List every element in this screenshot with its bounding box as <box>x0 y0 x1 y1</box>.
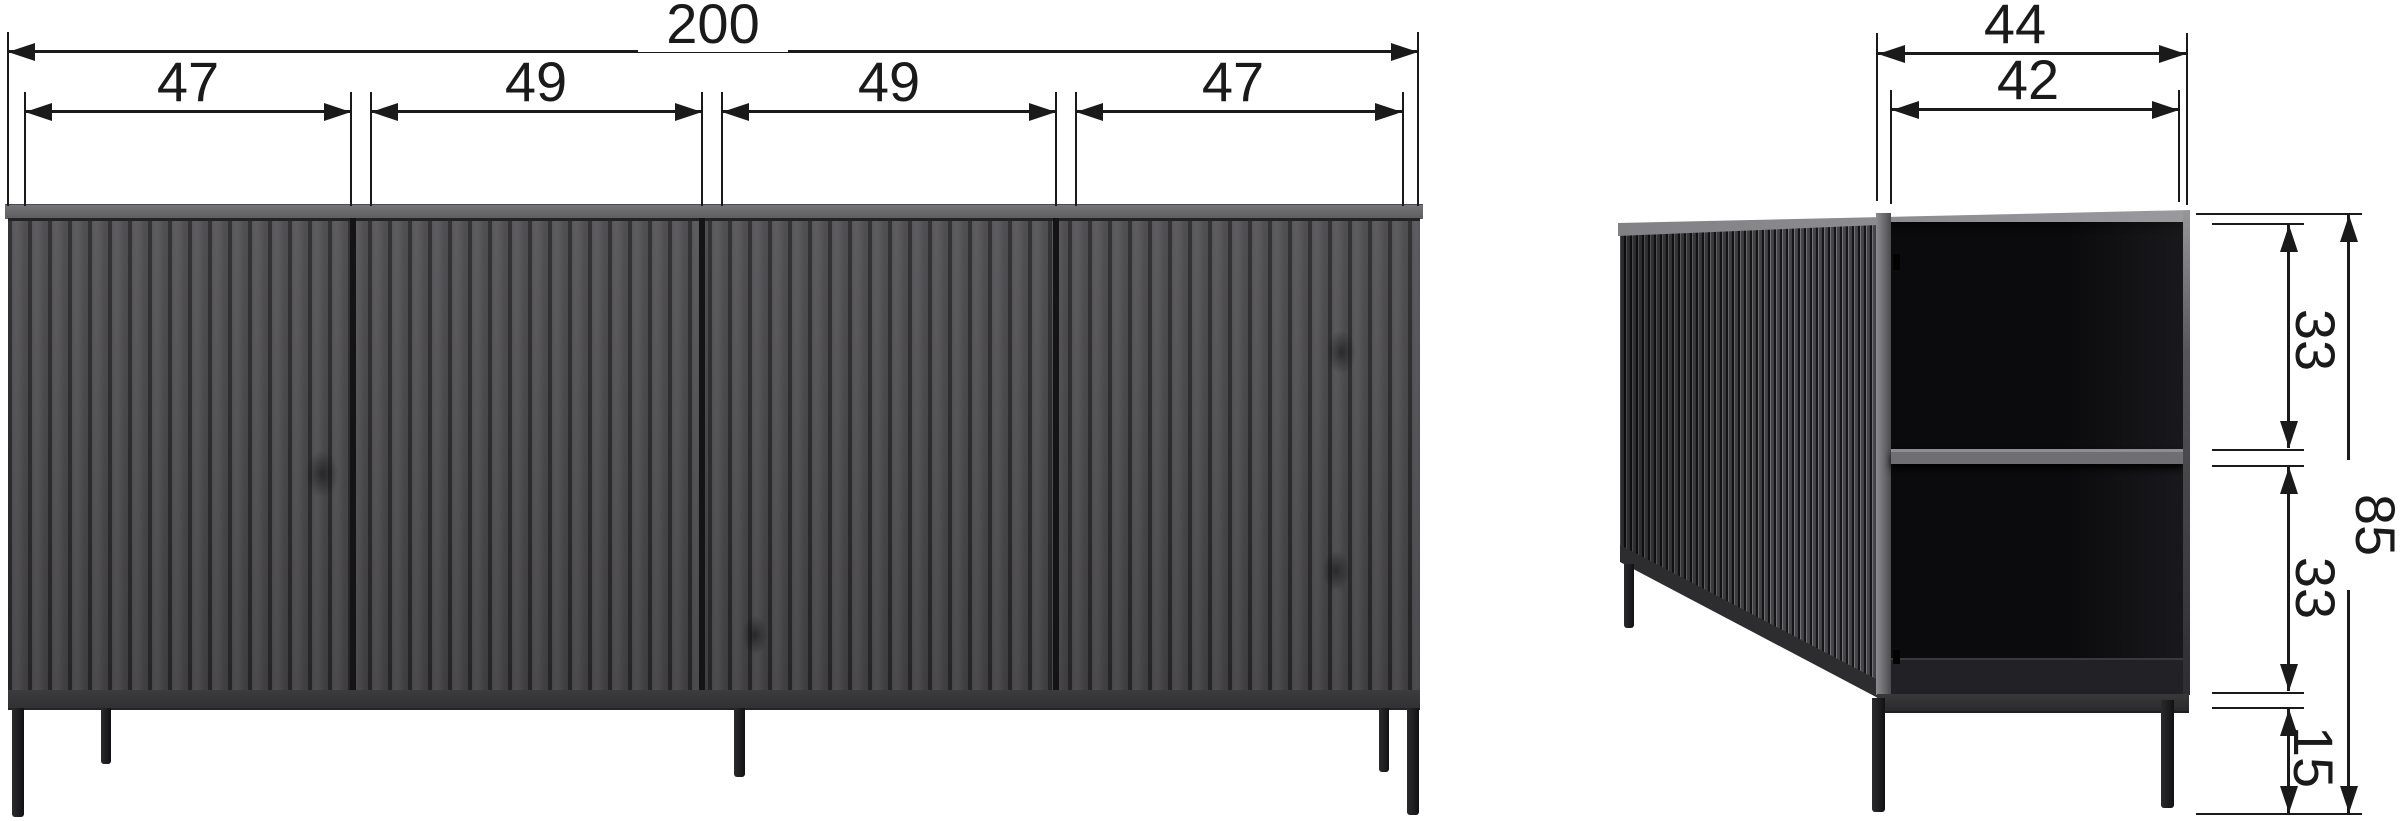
arrow-right-icon <box>1391 43 1418 61</box>
arrow-down-icon <box>2340 786 2358 813</box>
open-side-compartment <box>1891 222 2183 694</box>
overall-depth-label: 44 <box>1940 0 2090 52</box>
arrow-left-icon <box>371 103 398 121</box>
side-right-edge <box>2183 211 2190 695</box>
extension-line <box>24 92 26 206</box>
overall-width-label: 200 <box>638 0 788 52</box>
compartment-height-label: 33 <box>2287 523 2343 653</box>
door-gap <box>1053 218 1059 690</box>
arrow-down-icon <box>2280 421 2298 448</box>
front-top-shadow-line <box>8 218 1420 221</box>
extension-line <box>1402 92 1404 206</box>
extension-line <box>1055 92 1057 206</box>
arrow-up-icon <box>2340 215 2358 242</box>
side-base-plinth <box>1877 694 2189 713</box>
door-gap <box>350 218 356 690</box>
arrow-down-icon <box>2280 664 2298 691</box>
rear-middle-leg <box>734 708 745 777</box>
inner-depth-label: 42 <box>1953 52 2103 108</box>
compartment-floor <box>1891 658 2183 694</box>
extension-line <box>1876 33 1878 201</box>
compartment-width-label: 49 <box>814 54 964 110</box>
rear-right-leg <box>1379 708 1389 772</box>
overall-height-label: 85 <box>2347 460 2400 590</box>
hinge-hole <box>1893 254 1900 270</box>
extension-line <box>370 92 372 206</box>
side-view <box>1618 200 2193 821</box>
arrow-left-icon <box>25 103 52 121</box>
arrow-right-icon <box>324 103 351 121</box>
compartment-width-label: 49 <box>461 54 611 110</box>
arrow-left-icon <box>1076 103 1103 121</box>
extension-line <box>350 92 352 206</box>
arrow-right-icon <box>2152 101 2179 119</box>
extension-line <box>2186 33 2188 205</box>
compartment-width-label: 47 <box>113 54 263 110</box>
front-right-leg <box>1407 708 1419 815</box>
side-right-leg <box>2161 700 2174 808</box>
extension-line <box>721 92 723 206</box>
door-gap <box>699 218 705 690</box>
arrow-left-icon <box>8 43 35 61</box>
arrow-left-icon <box>722 103 749 121</box>
wood-knot <box>742 615 768 655</box>
arrow-up-icon <box>2280 467 2298 494</box>
arrow-left-icon <box>1892 101 1919 119</box>
wood-knot <box>1322 550 1350 592</box>
extension-line <box>701 92 703 206</box>
front-slatted-doors <box>8 218 1420 690</box>
front-corner-post <box>1876 213 1891 695</box>
side-far-leg <box>1624 564 1634 628</box>
leg-height-label: 15 <box>2285 692 2341 821</box>
extension-line <box>1890 90 1892 204</box>
extension-line <box>7 32 9 206</box>
extension-line <box>1417 32 1419 206</box>
extension-line <box>2196 213 2362 215</box>
dimension-diagram: 200 47 49 49 47 <box>0 0 2400 821</box>
arrow-right-icon <box>675 103 702 121</box>
hinge-hole <box>1893 650 1900 664</box>
compartment-height-label: 33 <box>2287 275 2343 405</box>
rear-left-leg <box>101 708 111 764</box>
compartment-width-label: 47 <box>1158 54 1308 110</box>
front-base-plinth <box>8 690 1420 710</box>
front-left-leg <box>12 708 24 817</box>
extension-line <box>1075 92 1077 206</box>
wood-knot <box>305 450 339 498</box>
arrow-right-icon <box>1029 103 1056 121</box>
arrow-right-icon <box>1375 103 1402 121</box>
arrow-up-icon <box>2280 225 2298 252</box>
shelf <box>1891 449 2183 464</box>
extension-line <box>2212 449 2304 451</box>
arrow-right-icon <box>2159 45 2186 63</box>
extension-line <box>2178 90 2180 202</box>
front-top-surface <box>5 204 1423 219</box>
arrow-left-icon <box>1878 45 1905 63</box>
side-corner-leg <box>1872 698 1885 812</box>
wood-knot <box>1326 330 1356 374</box>
